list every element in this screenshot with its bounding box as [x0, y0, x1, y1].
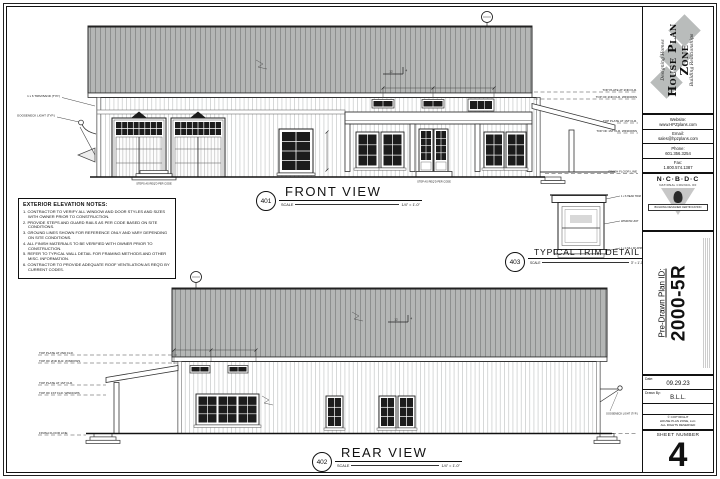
note-item: 1. CONTRACTOR TO VERIFY ALL WINDOW AND D…: [23, 210, 171, 220]
svg-text:GOOSENECK LIGHT (TYP.): GOOSENECK LIGHT (TYP.): [606, 413, 638, 416]
drawn-by-value: B.L.L.: [645, 395, 711, 401]
lightbulb-icon: [674, 191, 683, 203]
svg-text:TOP OF 1ST FLR. WINDOWS: TOP OF 1ST FLR. WINDOWS: [596, 129, 637, 133]
scale-value: 1/4" = 1'-0": [441, 464, 460, 468]
gooseneck-light: [78, 120, 96, 162]
garage-door: [112, 112, 166, 178]
wrap-porch: [532, 104, 615, 184]
contact-fax: Fax: 1.800.574.1387: [643, 159, 713, 175]
ncbdc-name: N·C·B·D·C: [643, 176, 713, 183]
copyright-block: © COPYRIGHT HOUSE PLAN ZONE, LLC. ALL RI…: [643, 415, 713, 431]
notes-title: EXTERIOR ELEVATION NOTES:: [23, 202, 171, 208]
scale-rule: [351, 465, 439, 466]
steps: [594, 434, 620, 444]
front-elevation: 12 4: [17, 11, 638, 185]
svg-text:TOP OF 1ST FLR. WINDOWS: TOP OF 1ST FLR. WINDOWS: [39, 391, 80, 395]
svg-text:TOP PLATE AT 2ND FLR.: TOP PLATE AT 2ND FLR.: [39, 351, 74, 355]
svg-text:12: 12: [389, 70, 393, 74]
scale-value: 1/4" = 1'-0": [401, 203, 420, 207]
svg-text:WINDOW UNIT: WINDOW UNIT: [621, 220, 639, 223]
gooseneck-light: GOOSENECK LIGHT (TYP.): [600, 386, 638, 416]
scale-rule: [295, 204, 399, 205]
scale-label: SCALE: [337, 464, 349, 468]
elevation-datum-lines: TOP PLATE AT 2ND FLR. TOP OF 2ND FLR. WI…: [534, 88, 638, 174]
svg-text:1 x 6 HEAD TRIM: 1 x 6 HEAD TRIM: [621, 195, 641, 198]
plan-id-label: Pre-Drawn Plan ID:: [657, 240, 666, 366]
svg-text:STEP AS REQ'D PER CODE: STEP AS REQ'D PER CODE: [417, 180, 451, 184]
view-title: TYPICAL TRIM DETAIL: [528, 247, 646, 259]
svg-text:TOP OF 2ND FLR. WINDOWS: TOP OF 2ND FLR. WINDOWS: [39, 359, 80, 363]
plan-id-block: Pre-Drawn Plan ID: 2000-5R: [643, 232, 713, 376]
elevation-datum-lines: TOP PLATE AT 2ND FLR. TOP OF 2ND FLR. WI…: [38, 351, 177, 435]
website-value: www.HPZplans.com: [643, 122, 713, 127]
contact-phone: Phone: 601.356.3254: [643, 144, 713, 159]
drawn-by-field: Drawn By: B.L.L.: [643, 390, 713, 404]
leader-callouts: 1 x 6 HEAD TRIM WINDOW UNIT 1 x 4 SILL W…: [604, 195, 646, 251]
svg-text:FINISH FLOOR LINE: FINISH FLOOR LINE: [608, 169, 637, 173]
note-item: 6. CONTRACTOR TO PROVIDE ADEQUATE ROOF V…: [23, 263, 171, 273]
sheet-number-value: 4: [643, 438, 713, 472]
french-doors: STEP AS REQ'D PER CODE: [416, 129, 452, 184]
empty-field: [643, 404, 713, 415]
ncbdc-certification-logo: N·C·B·D·C NATIONAL COUNCIL OF BUILDING D…: [643, 174, 713, 232]
plan-id-value: 2000-5R: [668, 240, 690, 366]
svg-text:TOP PLATE AT 1ST FLR.: TOP PLATE AT 1ST FLR.: [39, 381, 73, 385]
sheet-number-block: SHEET NUMBER 4: [643, 431, 713, 472]
contact-website: Website: www.HPZplans.com: [643, 115, 713, 130]
fax-value: 1.800.574.1387: [643, 165, 713, 170]
contact-email: Email: sales@hpzplans.com: [643, 130, 713, 145]
svg-text:12: 12: [394, 318, 398, 322]
svg-text:TOP OF 2ND FLR. WINDOWS: TOP OF 2ND FLR. WINDOWS: [596, 95, 637, 99]
copyright-disclaimer-microtext: [703, 238, 710, 368]
view-number-bubble: 402: [312, 452, 332, 472]
rear-view-titlebar: 402 REAR VIEW SCALE 1/4" = 1'-0": [312, 445, 462, 472]
garage-door: [171, 112, 225, 178]
note-item: 2. PROVIDE STEPS AND GUARD RAILS AS PER …: [23, 221, 171, 231]
view-number-bubble: 401: [256, 191, 276, 211]
rear-porch: [86, 366, 178, 444]
svg-text:STEPS AS REQ'D PER CODE: STEPS AS REQ'D PER CODE: [136, 182, 172, 186]
window: [194, 394, 261, 428]
date-field: Date: 09.29.23: [643, 376, 713, 390]
email-value: sales@hpzplans.com: [643, 136, 713, 141]
ncbdc-banner: BUILDING DESIGNER CERTIFICATION: [648, 204, 708, 211]
ncbdc-subtitle: NATIONAL COUNCIL OF: [643, 183, 713, 187]
rear-elevation: 12 4: [38, 272, 638, 444]
view-title: FRONT VIEW: [279, 184, 422, 201]
note-item: 5. REFER TO TYPICAL WALL DETAIL FOR FRAM…: [23, 252, 171, 262]
view-title: REAR VIEW: [335, 445, 462, 462]
trim-detail-titlebar: 403 TYPICAL TRIM DETAIL SCALE 3" = 1'-0": [505, 247, 639, 272]
date-value: 09.29.23: [645, 381, 711, 387]
brand-tagline-bottom: Building Relationships: [690, 8, 695, 112]
note-item: 4. ALL FINISH MATERIALS TO BE VERIFIED W…: [23, 242, 171, 252]
brand-logo: Designing Homes House Plan Zone Building…: [643, 7, 713, 115]
rear-roof: 12 4: [172, 288, 607, 364]
svg-text:1 x 6 TRIM BAND (TYP.): 1 x 6 TRIM BAND (TYP.): [27, 94, 60, 98]
scale-label: SCALE: [530, 261, 540, 265]
svg-text:TOP PLATE AT 1ST FLR.: TOP PLATE AT 1ST FLR.: [603, 119, 637, 123]
scale-label: SCALE: [281, 203, 293, 207]
front-view-titlebar: 401 FRONT VIEW SCALE 1/4" = 1'-0": [256, 184, 422, 211]
drawing-sheet: 12 4: [0, 0, 720, 479]
front-roof: 12 4: [88, 26, 532, 98]
svg-text:GOOSENECK LIGHT (TYP.): GOOSENECK LIGHT (TYP.): [17, 114, 55, 118]
title-block: Designing Homes House Plan Zone Building…: [642, 6, 714, 473]
svg-text:FINISH FLOOR LINE: FINISH FLOOR LINE: [39, 431, 68, 435]
scale-rule: [542, 262, 628, 263]
svg-text:TOP PLATE AT 2ND FLR.: TOP PLATE AT 2ND FLR.: [602, 88, 637, 92]
exterior-elevation-notes: EXTERIOR ELEVATION NOTES: 1. CONTRACTOR …: [18, 198, 176, 279]
brand-name: House Plan Zone: [666, 8, 690, 112]
view-number-bubble: 403: [505, 252, 525, 272]
leader-callouts: 1 x 6 TRIM BAND (TYP.) GOOSENECK LIGHT (…: [17, 94, 95, 122]
phone-value: 601.356.3254: [643, 151, 713, 156]
note-item: 3. GROUND LINES SHOWN FOR REFERENCE ONLY…: [23, 231, 171, 241]
